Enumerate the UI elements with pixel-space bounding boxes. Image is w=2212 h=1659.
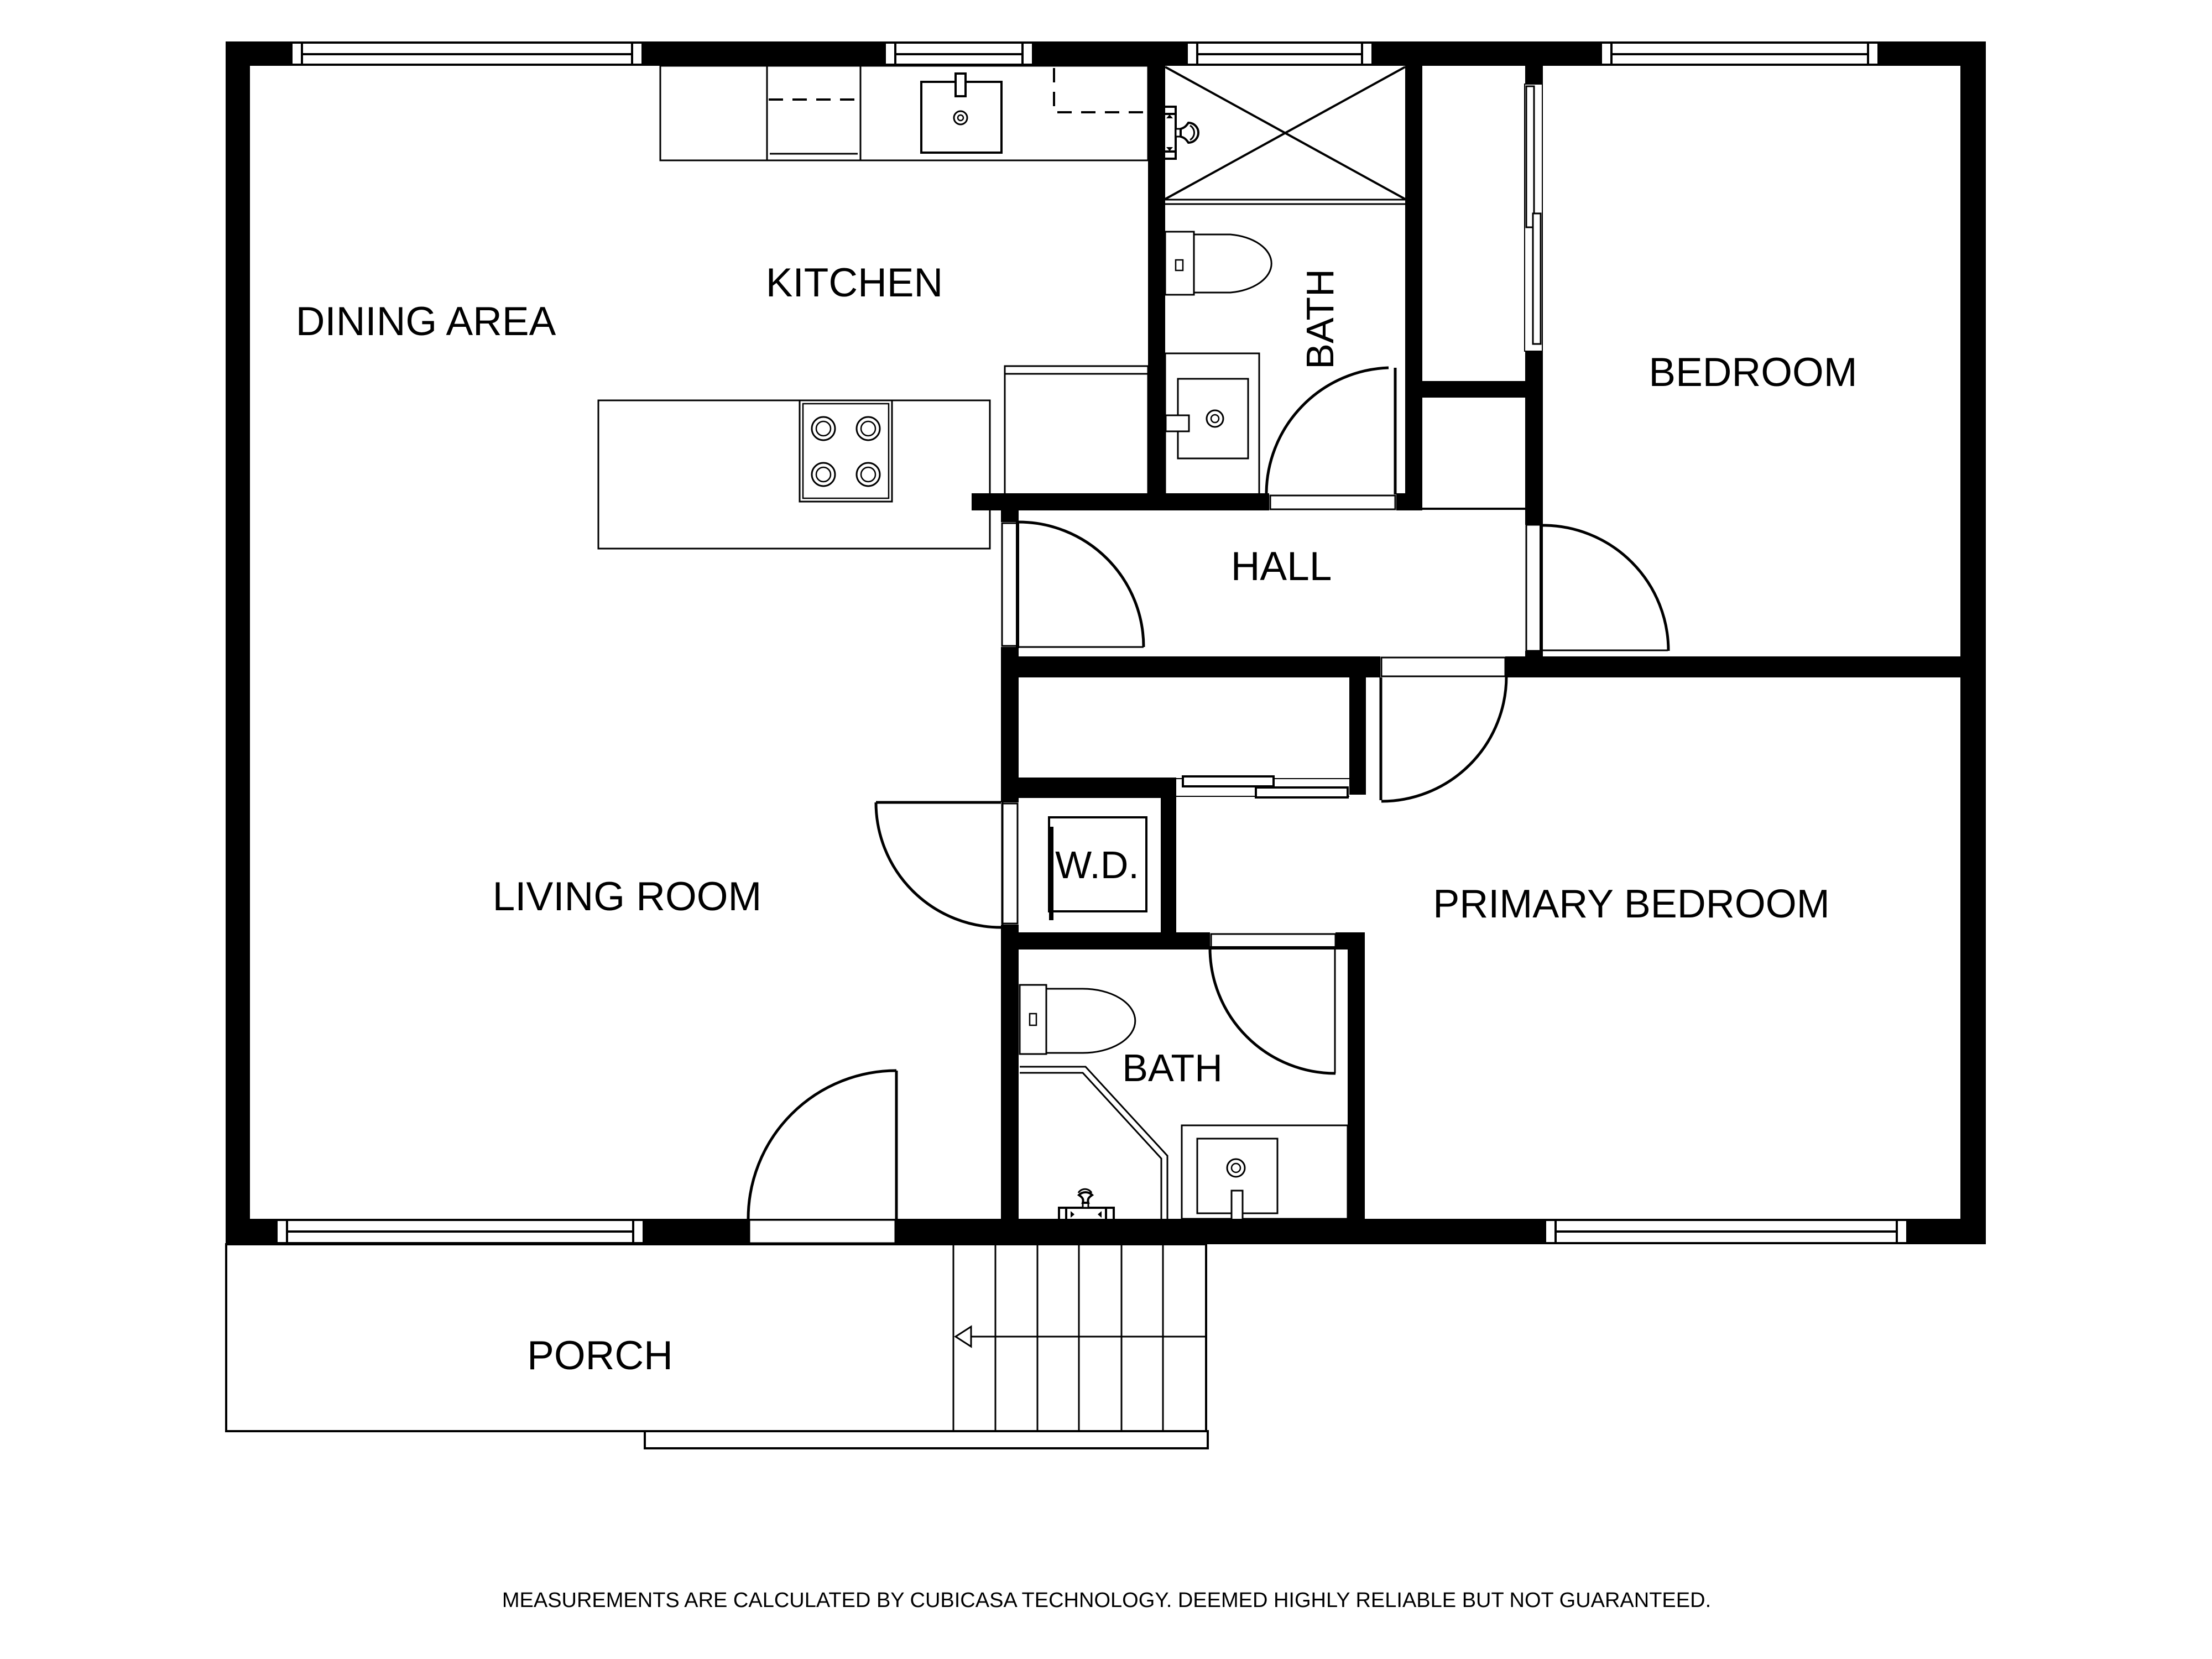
svg-text:BATH: BATH <box>1122 1046 1223 1089</box>
svg-text:BEDROOM: BEDROOM <box>1648 350 1857 395</box>
svg-text:PRIMARY BEDROOM: PRIMARY BEDROOM <box>1433 882 1829 926</box>
svg-text:BATH: BATH <box>1298 269 1342 369</box>
svg-text:PORCH: PORCH <box>527 1333 673 1378</box>
svg-text:HALL: HALL <box>1231 544 1332 589</box>
svg-text:KITCHEN: KITCHEN <box>766 260 943 305</box>
svg-text:DINING AREA: DINING AREA <box>296 299 556 344</box>
svg-text:MEASUREMENTS ARE CALCULATED BY: MEASUREMENTS ARE CALCULATED BY CUBICASA … <box>502 1589 1711 1612</box>
svg-text:W.D.: W.D. <box>1055 843 1139 886</box>
svg-text:LIVING ROOM: LIVING ROOM <box>493 874 762 919</box>
